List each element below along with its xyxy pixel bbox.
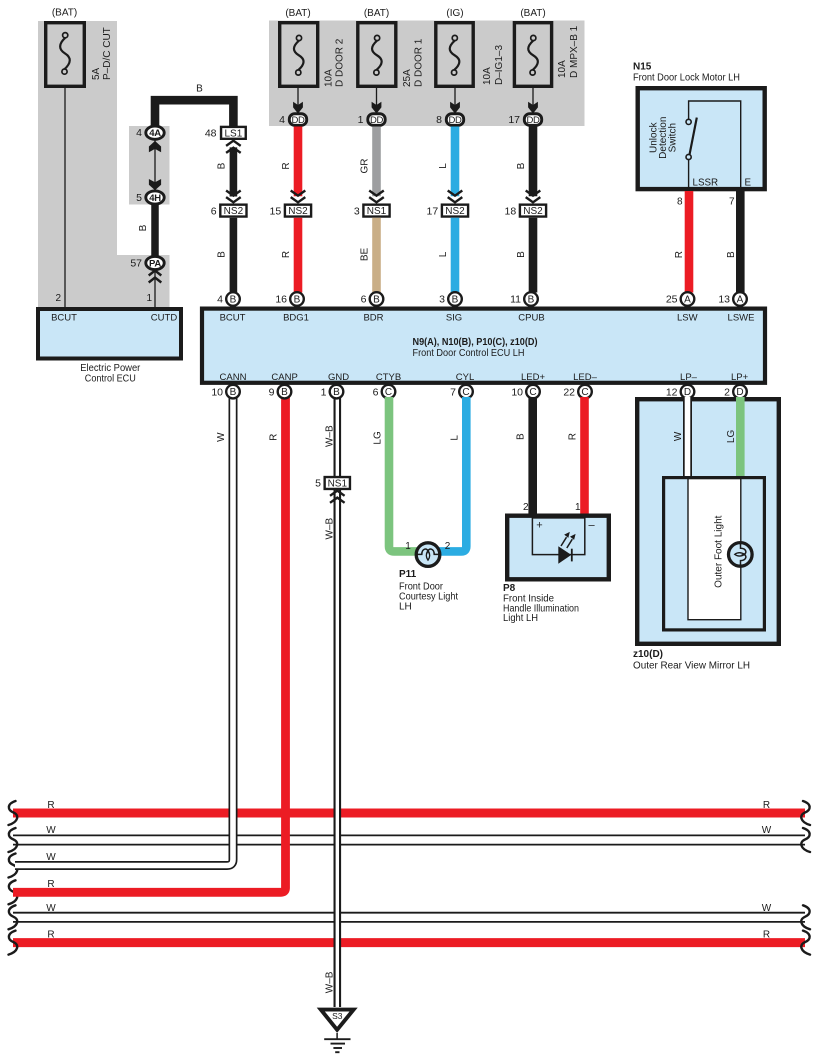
svg-text:D DOOR 1: D DOOR 1: [414, 38, 425, 87]
svg-text:DD: DD: [291, 115, 305, 126]
svg-text:P–D/C CUT: P–D/C CUT: [102, 27, 113, 80]
svg-text:+: +: [536, 520, 542, 532]
svg-text:W: W: [46, 825, 56, 836]
svg-text:NS1: NS1: [367, 206, 387, 217]
svg-text:48: 48: [205, 127, 217, 139]
svg-text:GND: GND: [328, 372, 349, 383]
svg-text:z10(D): z10(D): [633, 649, 663, 660]
svg-text:(BAT): (BAT): [285, 8, 310, 19]
svg-text:CANP: CANP: [271, 372, 297, 383]
svg-text:17: 17: [427, 205, 439, 217]
svg-text:W: W: [216, 432, 227, 442]
svg-text:A: A: [737, 295, 744, 306]
svg-text:25A: 25A: [402, 69, 413, 87]
svg-text:5A: 5A: [91, 67, 102, 80]
svg-text:B: B: [294, 295, 301, 306]
svg-text:15: 15: [270, 205, 282, 217]
svg-text:Control ECU: Control ECU: [85, 374, 136, 385]
svg-text:S3: S3: [332, 1011, 343, 1021]
svg-text:N9(A), N10(B), P10(C), z10(D): N9(A), N10(B), P10(C), z10(D): [413, 337, 538, 348]
svg-text:8: 8: [436, 114, 442, 126]
svg-text:(IG): (IG): [446, 8, 463, 19]
svg-text:B: B: [216, 162, 227, 169]
svg-text:10A: 10A: [557, 60, 568, 78]
svg-text:R: R: [269, 434, 280, 441]
svg-text:4A: 4A: [149, 128, 161, 139]
svg-text:1: 1: [146, 293, 152, 304]
svg-text:1: 1: [405, 541, 411, 552]
svg-text:CANN: CANN: [220, 372, 247, 383]
svg-text:DD: DD: [370, 115, 384, 126]
svg-text:1: 1: [358, 114, 364, 126]
svg-text:LP+: LP+: [731, 372, 749, 383]
svg-text:LSWE: LSWE: [728, 312, 755, 323]
svg-text:2: 2: [724, 386, 730, 398]
svg-text:3: 3: [354, 205, 360, 217]
svg-text:B: B: [516, 162, 527, 169]
svg-text:Switch: Switch: [668, 123, 679, 152]
svg-text:LSW: LSW: [677, 312, 698, 323]
svg-text:B: B: [726, 251, 737, 258]
svg-text:4H: 4H: [149, 193, 161, 204]
svg-text:1: 1: [321, 386, 327, 398]
svg-text:CPUB: CPUB: [518, 312, 544, 323]
svg-text:D DOOR 2: D DOOR 2: [335, 38, 346, 87]
svg-text:10: 10: [511, 386, 523, 398]
svg-text:CUTD: CUTD: [151, 312, 178, 323]
svg-text:W–B: W–B: [324, 425, 335, 447]
svg-text:R: R: [763, 929, 770, 940]
svg-text:6: 6: [361, 294, 367, 306]
svg-text:A: A: [684, 295, 691, 306]
svg-text:W: W: [673, 431, 684, 441]
svg-text:6: 6: [373, 386, 379, 398]
svg-text:B: B: [333, 387, 340, 398]
svg-text:B: B: [138, 224, 149, 231]
svg-text:Electric Power: Electric Power: [80, 363, 141, 374]
svg-text:B: B: [452, 295, 459, 306]
svg-text:NS2: NS2: [288, 206, 308, 217]
svg-text:7: 7: [729, 196, 735, 207]
svg-text:B: B: [230, 295, 237, 306]
svg-text:L: L: [438, 163, 449, 169]
svg-text:13: 13: [718, 294, 730, 306]
svg-text:BDR: BDR: [363, 312, 383, 323]
svg-text:(BAT): (BAT): [520, 8, 545, 19]
svg-text:Light LH: Light LH: [503, 613, 538, 624]
svg-text:NS2: NS2: [445, 206, 465, 217]
svg-text:P11: P11: [399, 569, 417, 580]
svg-text:5: 5: [315, 478, 321, 490]
svg-text:P8: P8: [503, 583, 516, 594]
svg-text:W: W: [762, 825, 772, 836]
svg-text:Front Door Control ECU LH: Front Door Control ECU LH: [413, 348, 525, 359]
svg-text:W: W: [46, 903, 56, 914]
svg-text:C: C: [462, 387, 469, 398]
svg-text:2: 2: [445, 541, 451, 552]
svg-text:LP–: LP–: [680, 372, 698, 383]
svg-text:W–B: W–B: [324, 517, 335, 539]
svg-text:D–IG1–3: D–IG1–3: [494, 45, 505, 85]
svg-text:10A: 10A: [323, 69, 334, 87]
svg-text:R: R: [281, 162, 292, 169]
svg-text:R: R: [674, 251, 685, 258]
svg-text:9: 9: [269, 386, 275, 398]
svg-text:LSSR: LSSR: [693, 178, 719, 189]
svg-text:R: R: [763, 800, 770, 811]
svg-text:Outer Rear View Mirror LH: Outer Rear View Mirror LH: [633, 661, 750, 672]
svg-text:18: 18: [505, 205, 517, 217]
svg-text:B: B: [516, 433, 527, 440]
svg-text:N15: N15: [633, 62, 652, 73]
svg-text:B: B: [528, 295, 535, 306]
svg-text:4: 4: [217, 294, 223, 306]
svg-text:LED+: LED+: [521, 372, 545, 383]
svg-text:57: 57: [130, 258, 142, 270]
svg-text:R: R: [568, 433, 579, 440]
svg-text:C: C: [581, 387, 588, 398]
svg-text:BDG1: BDG1: [283, 312, 309, 323]
svg-text:LS1: LS1: [225, 128, 243, 139]
svg-text:GR: GR: [360, 159, 371, 174]
svg-text:2: 2: [523, 502, 529, 513]
svg-text:L: L: [449, 435, 460, 441]
svg-text:CYL: CYL: [456, 372, 474, 383]
svg-text:DD: DD: [448, 115, 462, 126]
svg-text:NS2: NS2: [224, 206, 244, 217]
svg-text:3: 3: [439, 294, 445, 306]
svg-text:DD: DD: [526, 115, 540, 126]
svg-text:R: R: [47, 800, 54, 811]
svg-text:6: 6: [211, 205, 217, 217]
svg-text:B: B: [373, 295, 380, 306]
svg-text:10: 10: [211, 386, 223, 398]
svg-text:C: C: [529, 387, 536, 398]
svg-text:SIG: SIG: [446, 312, 462, 323]
svg-text:(BAT): (BAT): [364, 8, 389, 19]
svg-text:22: 22: [563, 386, 575, 398]
svg-text:D MPX–B 1: D MPX–B 1: [569, 25, 580, 78]
svg-text:1: 1: [575, 502, 581, 513]
svg-text:BCUT: BCUT: [220, 312, 246, 323]
svg-text:D: D: [684, 387, 691, 398]
svg-text:2: 2: [55, 293, 61, 304]
svg-text:E: E: [745, 178, 752, 189]
svg-text:NS1: NS1: [328, 479, 348, 490]
svg-text:7: 7: [450, 386, 456, 398]
svg-text:–: –: [588, 520, 595, 532]
svg-text:12: 12: [666, 386, 678, 398]
svg-text:LG: LG: [373, 431, 384, 445]
svg-text:Front Door Lock Motor LH: Front Door Lock Motor LH: [633, 73, 740, 84]
svg-text:5: 5: [136, 192, 142, 204]
svg-text:16: 16: [275, 294, 287, 306]
svg-text:11: 11: [510, 294, 521, 306]
svg-text:4: 4: [136, 127, 142, 139]
svg-text:NS2: NS2: [523, 206, 543, 217]
svg-text:B: B: [196, 84, 203, 95]
svg-text:D: D: [736, 387, 743, 398]
svg-text:LED–: LED–: [573, 372, 597, 383]
svg-text:R: R: [47, 929, 54, 940]
svg-text:B: B: [516, 251, 527, 258]
svg-text:PA: PA: [149, 259, 161, 270]
svg-text:4: 4: [279, 114, 285, 126]
svg-text:C: C: [385, 387, 392, 398]
svg-text:LG: LG: [726, 430, 737, 444]
svg-text:W: W: [762, 903, 772, 914]
svg-text:W–B: W–B: [324, 971, 335, 993]
svg-text:B: B: [230, 387, 237, 398]
svg-text:Outer Foot Light: Outer Foot Light: [714, 515, 725, 587]
svg-text:R: R: [281, 251, 292, 258]
svg-text:(BAT): (BAT): [52, 8, 77, 19]
svg-text:CTYB: CTYB: [376, 372, 401, 383]
svg-text:B: B: [216, 251, 227, 258]
svg-text:10A: 10A: [482, 67, 493, 85]
svg-text:25: 25: [666, 294, 678, 306]
svg-text:17: 17: [508, 114, 520, 126]
svg-text:BCUT: BCUT: [51, 312, 77, 323]
svg-text:BE: BE: [360, 248, 371, 262]
svg-text:B: B: [281, 387, 288, 398]
svg-text:8: 8: [677, 196, 683, 207]
svg-text:L: L: [438, 251, 449, 257]
svg-text:LH: LH: [399, 602, 412, 613]
